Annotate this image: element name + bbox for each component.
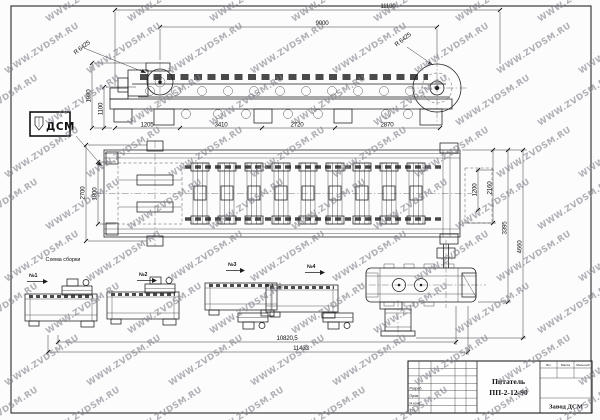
watermark-text: WWW.ZVDSM.RU xyxy=(454,0,532,25)
step-1-label: №1 xyxy=(29,273,38,279)
col-masshtab: Масштаб xyxy=(576,363,589,367)
watermark-text: WWW.ZVDSM.RU xyxy=(44,281,122,337)
step-4-label: №4 xyxy=(307,264,316,270)
watermark-text: WWW.ZVDSM.RU xyxy=(126,73,204,129)
watermark-text: WWW.ZVDSM.RU xyxy=(249,21,327,77)
watermark-text: WWW.ZVDSM.RU xyxy=(495,21,573,77)
watermark-text: WWW.ZVDSM.RU xyxy=(290,73,368,129)
watermark-text: WWW.ZVDSM.RU xyxy=(577,21,600,77)
dim-right-2: 2160 xyxy=(487,181,494,195)
watermark-text: WWW.ZVDSM.RU xyxy=(577,125,600,181)
watermark-text: WWW.ZVDSM.RU xyxy=(208,385,286,420)
watermark-text: WWW.ZVDSM.RU xyxy=(290,281,368,337)
watermark-text: WWW.ZVDSM.RU xyxy=(126,0,204,25)
watermark-text: WWW.ZVDSM.RU xyxy=(126,385,204,420)
col-massa: Масса xyxy=(561,363,570,367)
watermark-text: WWW.ZVDSM.RU xyxy=(331,21,409,77)
watermark-text: WWW.ZVDSM.RU xyxy=(536,0,600,25)
watermark-text: WWW.ZVDSM.RU xyxy=(167,125,245,181)
watermark-text: WWW.ZVDSM.RU xyxy=(413,125,491,181)
watermark-text: WWW.ZVDSM.RU xyxy=(208,73,286,129)
watermark-text: WWW.ZVDSM.RU xyxy=(536,281,600,337)
sig-row-2: Пров. xyxy=(410,394,420,398)
view-leader xyxy=(76,136,102,166)
watermark-layer: WWW.ZVDSM.RUWWW.ZVDSM.RUWWW.ZVDSM.RUWWW.… xyxy=(0,0,600,420)
watermark-text: WWW.ZVDSM.RU xyxy=(208,0,286,25)
watermark-text: WWW.ZVDSM.RU xyxy=(454,281,532,337)
dim-radius-left: R 6425 xyxy=(73,39,93,57)
step-2-label: №2 xyxy=(139,272,148,278)
watermark-text: WWW.ZVDSM.RU xyxy=(44,73,122,129)
step-3-label: №3 xyxy=(228,262,237,268)
drawing-canvas: 11180 9000 R 6425 R 6425 1980 1100 xyxy=(0,0,600,420)
watermark-text: WWW.ZVDSM.RU xyxy=(495,125,573,181)
watermark-text: WWW.ZVDSM.RU xyxy=(85,21,163,77)
watermark-text: WWW.ZVDSM.RU xyxy=(44,0,122,25)
watermark-text: WWW.ZVDSM.RU xyxy=(208,281,286,337)
watermark-text: WWW.ZVDSM.RU xyxy=(126,281,204,337)
watermark-text: WWW.ZVDSM.RU xyxy=(0,281,40,337)
watermark-text: WWW.ZVDSM.RU xyxy=(331,333,409,389)
watermark-text: WWW.ZVDSM.RU xyxy=(413,21,491,77)
watermark-text: WWW.ZVDSM.RU xyxy=(577,229,600,285)
watermark-text: WWW.ZVDSM.RU xyxy=(290,385,368,420)
watermark-text: WWW.ZVDSM.RU xyxy=(536,73,600,129)
watermark-text: WWW.ZVDSM.RU xyxy=(372,73,450,129)
watermark-text: WWW.ZVDSM.RU xyxy=(3,21,81,77)
watermark-text: WWW.ZVDSM.RU xyxy=(290,0,368,25)
side-view-dimensions: 11180 9000 R 6425 R 6425 1980 1100 xyxy=(73,3,502,130)
watermark-text: WWW.ZVDSM.RU xyxy=(3,333,81,389)
watermark-text: WWW.ZVDSM.RU xyxy=(454,73,532,129)
watermark-text: WWW.ZVDSM.RU xyxy=(0,0,40,25)
watermark-text: WWW.ZVDSM.RU xyxy=(85,333,163,389)
dim-height-inner: 1100 xyxy=(98,102,105,115)
side-elevation-view: 11180 9000 R 6425 R 6425 1980 1100 xyxy=(73,3,502,130)
dim-right-4: 4660 xyxy=(517,240,524,254)
watermark-text: WWW.ZVDSM.RU xyxy=(536,177,600,233)
scheme-title: Схема сборки xyxy=(46,257,81,263)
watermark-text: WWW.ZVDSM.RU xyxy=(44,385,122,420)
watermark-text: WWW.ZVDSM.RU xyxy=(167,21,245,77)
dim-right-1: 1200 xyxy=(472,183,479,197)
watermark-text: WWW.ZVDSM.RU xyxy=(167,333,245,389)
watermark-text: WWW.ZVDSM.RU xyxy=(331,125,409,181)
watermark-text: WWW.ZVDSM.RU xyxy=(0,385,40,420)
col-lit: Лит. xyxy=(546,363,552,367)
drawing-sheet: 11180 9000 R 6425 R 6425 1980 1100 xyxy=(0,0,600,420)
watermark-text: WWW.ZVDSM.RU xyxy=(495,229,573,285)
dim-right-3: 3395 xyxy=(502,221,509,235)
watermark-text: WWW.ZVDSM.RU xyxy=(0,177,40,233)
watermark-text: WWW.ZVDSM.RU xyxy=(85,125,163,181)
